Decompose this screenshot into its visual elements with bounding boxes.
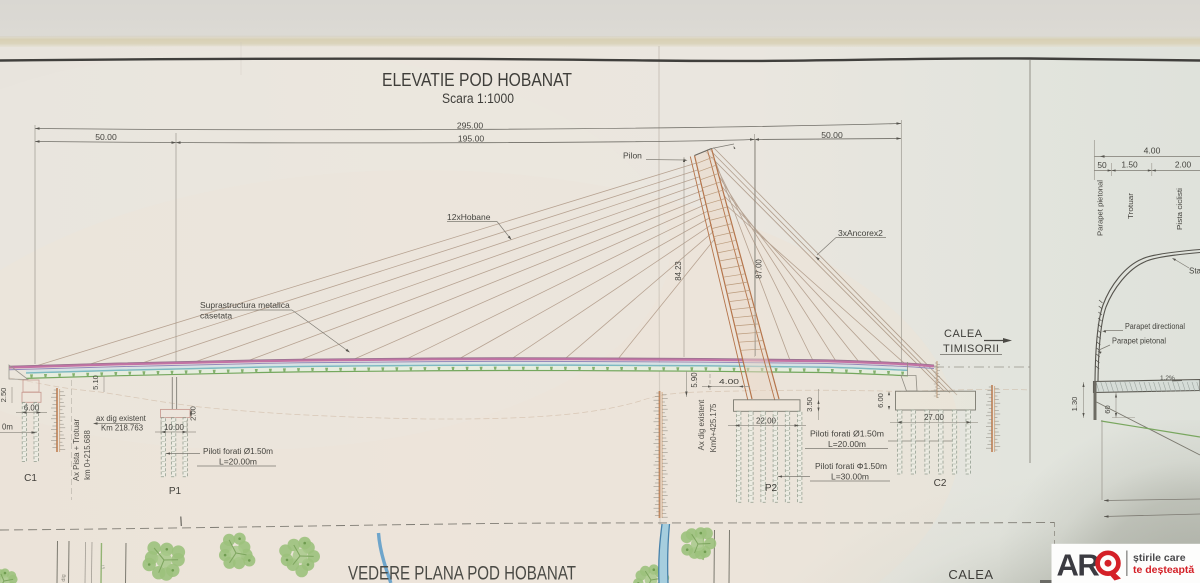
svg-text:Parapet pietonal: Parapet pietonal <box>1112 337 1166 346</box>
svg-text:Parapet directional: Parapet directional <box>1125 322 1185 331</box>
svg-text:Km 218.763: Km 218.763 <box>101 424 143 433</box>
svg-text:ax dig existent: ax dig existent <box>96 414 147 423</box>
svg-text:6.00: 6.00 <box>24 404 40 413</box>
svg-text:Sta: Sta <box>1189 267 1200 276</box>
svg-text:te deșteaptă: te deșteaptă <box>1133 564 1194 576</box>
svg-text:Ax dig existent: Ax dig existent <box>697 399 706 451</box>
svg-text:C2: C2 <box>934 478 947 489</box>
svg-text:3xAncorex2: 3xAncorex2 <box>838 228 883 238</box>
svg-text:TIMISORII: TIMISORII <box>943 343 999 355</box>
svg-text:2.00: 2.00 <box>189 406 198 421</box>
svg-text:Suprastructura metalica: Suprastructura metalica <box>200 300 290 310</box>
svg-text:87.00: 87.00 <box>755 259 764 279</box>
svg-text:CALEA: CALEA <box>944 328 983 340</box>
svg-text:Piloti forati Ø1.50m: Piloti forati Ø1.50m <box>810 430 884 439</box>
svg-text:Ax Pista + Trotuar: Ax Pista + Trotuar <box>72 419 81 482</box>
svg-text:50: 50 <box>1097 160 1107 170</box>
svg-text:AR: AR <box>1057 548 1100 583</box>
svg-text:dig: dig <box>61 574 67 581</box>
svg-text:Pilon: Pilon <box>623 151 642 161</box>
svg-text:știrile care: știrile care <box>1133 552 1186 564</box>
svg-text:1.50: 1.50 <box>1121 160 1138 170</box>
svg-text:P2: P2 <box>765 483 778 494</box>
svg-text:Pista ciclisti: Pista ciclisti <box>1175 188 1184 230</box>
svg-text:L=20.00m: L=20.00m <box>219 458 257 467</box>
svg-text:2.00: 2.00 <box>1175 160 1192 170</box>
svg-text:50.00: 50.00 <box>95 132 117 142</box>
svg-text:Parapet pietonal: Parapet pietonal <box>1096 180 1105 236</box>
svg-text:P1: P1 <box>169 486 182 497</box>
svg-text:Piloti forati Φ1.50m: Piloti forati Φ1.50m <box>815 462 887 471</box>
svg-text:84.23: 84.23 <box>674 261 683 281</box>
svg-text:4.00: 4.00 <box>1144 146 1161 156</box>
svg-text:Km0+425.175: Km0+425.175 <box>709 403 718 452</box>
svg-text:27.00: 27.00 <box>924 413 945 422</box>
svg-text:G: G <box>101 565 105 571</box>
svg-text:5.10: 5.10 <box>91 375 100 390</box>
svg-text:L=20.00m: L=20.00m <box>828 440 866 449</box>
svg-text:50.00: 50.00 <box>821 130 843 140</box>
svg-text:12xHobane: 12xHobane <box>447 212 491 222</box>
svg-text:Scara 1:1000: Scara 1:1000 <box>442 91 514 106</box>
svg-text:4.00: 4.00 <box>719 377 739 386</box>
svg-text:2.50: 2.50 <box>0 388 8 403</box>
svg-text:km 0+215.688: km 0+215.688 <box>83 430 92 480</box>
svg-text:casetata: casetata <box>200 311 232 321</box>
svg-text:CALEA: CALEA <box>948 567 993 582</box>
svg-text:1.30: 1.30 <box>1070 397 1079 412</box>
svg-text:L=30.00m: L=30.00m <box>831 473 869 482</box>
svg-text:195.00: 195.00 <box>458 134 485 144</box>
svg-text:22.00: 22.00 <box>756 417 777 426</box>
svg-text:Piloti forati Ø1.50m: Piloti forati Ø1.50m <box>203 447 273 456</box>
svg-text:3.50: 3.50 <box>805 397 814 412</box>
svg-text:5.90: 5.90 <box>690 372 699 388</box>
svg-text:VEDERE PLANA POD HOBANAT: VEDERE PLANA POD HOBANAT <box>348 563 576 583</box>
svg-text:C1: C1 <box>24 473 37 484</box>
svg-text:0m: 0m <box>2 423 13 432</box>
svg-text:Trotuar: Trotuar <box>1126 192 1135 219</box>
svg-text:10.00: 10.00 <box>164 423 185 432</box>
svg-text:ELEVATIE POD HOBANAT: ELEVATIE POD HOBANAT <box>382 70 572 90</box>
svg-text:6.00: 6.00 <box>876 393 885 408</box>
